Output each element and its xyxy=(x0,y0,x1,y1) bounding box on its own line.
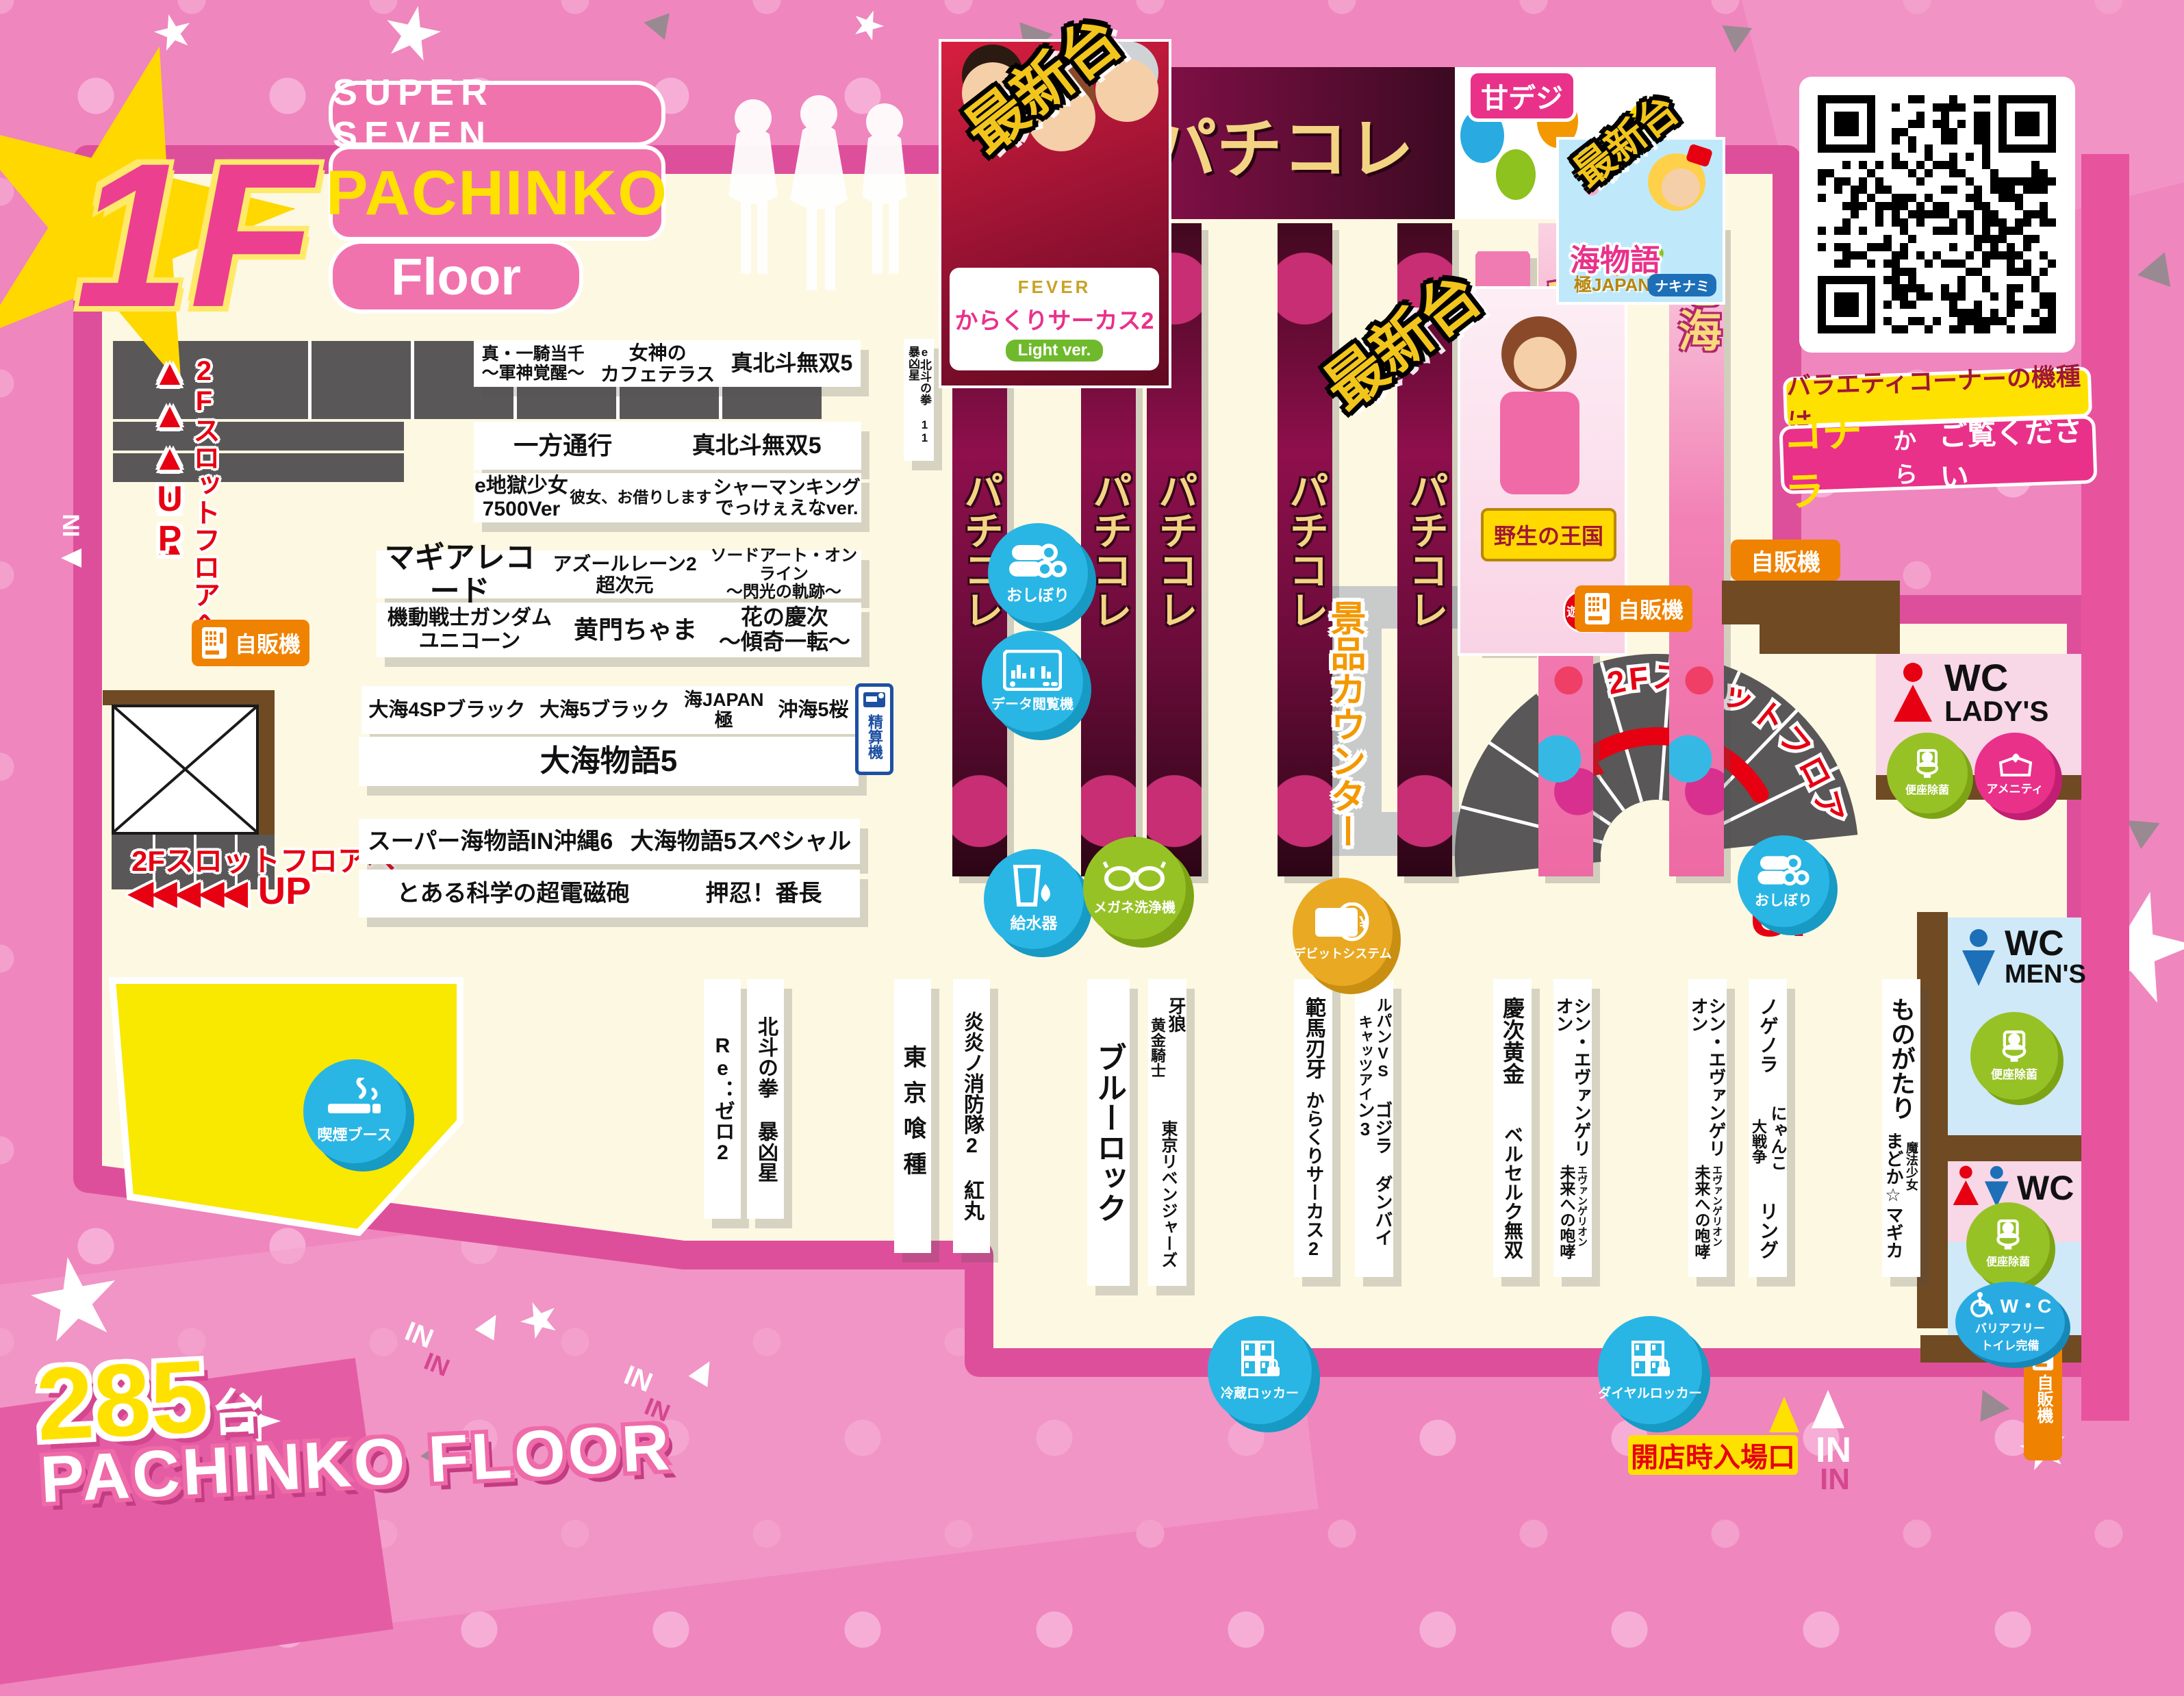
svg-text:¥: ¥ xyxy=(1359,912,1369,933)
machine-island-row: 一方通行 真北斗無双5 xyxy=(474,422,861,470)
machine-label: シン・エヴァンゲリオン xyxy=(1555,997,1590,1165)
vending-icon xyxy=(1584,592,1611,626)
machine-label: まどか☆マギカ xyxy=(1885,1132,1903,1259)
machine-label: 女神の カフェテラス xyxy=(600,342,715,385)
seat-clean-badge: 便座除菌 xyxy=(1966,1202,2050,1286)
amenity-label: アメニティ xyxy=(1986,779,2043,796)
pachinko-floor-map: { "header": { "floor_badge": "1F", "bran… xyxy=(0,0,2184,1489)
in-marker: IN xyxy=(59,514,86,537)
card-icon: ¥ xyxy=(1314,902,1371,942)
machine-label: ものがたり xyxy=(1889,997,1914,1120)
debit-label: デビットシステム xyxy=(1293,944,1391,962)
yasei-logo: 野生の王国 xyxy=(1481,508,1616,561)
machine-label: 真北斗無双5 xyxy=(692,433,822,459)
machine-label: 花の慶次 〜傾奇一転〜 xyxy=(719,605,850,655)
glasses-washer-station: メガネ洗浄機 xyxy=(1083,837,1186,939)
entrance-label: 開店時入場口 xyxy=(1631,1435,1795,1475)
machine-label: 魔法少女 xyxy=(1905,1141,1918,1191)
brand-pachinko: PACHINKO xyxy=(329,145,665,241)
machine-label: ブルーロック xyxy=(1093,1042,1123,1223)
wc-label: WC xyxy=(2005,926,2086,961)
machine-island-column: Re：ゼロ2 xyxy=(704,979,741,1219)
machine-label: 真北斗無双5 xyxy=(731,351,853,376)
to-2f-label: 2Fスロットフロアへ xyxy=(190,356,218,635)
kiosk-box: 精算機 xyxy=(855,683,893,775)
machine-label: Re：ゼロ2 xyxy=(712,1035,733,1164)
machine-island-column: 東京喰種 xyxy=(894,979,931,1253)
vending-label: 自販機 xyxy=(2035,1374,2051,1423)
vending-machine: 自販機 xyxy=(1731,540,1840,581)
machine-label: 大海4SPブラック xyxy=(368,699,525,721)
machine-label: 大海物語5 xyxy=(540,744,677,778)
machine-label: スーパー海物語IN沖縄6 xyxy=(368,828,613,855)
left-up-row: ◀◀◀◀◀ UP xyxy=(127,868,312,913)
vending-label: 自販機 xyxy=(1751,544,1820,577)
wall xyxy=(1760,624,1900,654)
machine-island-column: ものがたり まどか☆マギカ魔法少女 xyxy=(1882,979,1920,1277)
yasei-title: 野生の王国 xyxy=(1494,519,1603,550)
machine-island-column: e北斗の拳 11 暴凶星 xyxy=(904,339,934,461)
machine-label: 未来への咆哮 xyxy=(1558,1165,1574,1259)
pachikore-label: パチコレ xyxy=(1154,470,1194,629)
entrance-box: 開店時入場口 xyxy=(1628,1435,1798,1475)
machine-island-column: ノゲノラ 大戦争にゃんこ リング xyxy=(1749,979,1787,1277)
cigarette-icon xyxy=(325,1078,384,1120)
machine-label: からくりサーカス2 xyxy=(1304,1091,1323,1259)
towel-icon xyxy=(1757,852,1810,888)
machine-label: エヴァンゲリオン xyxy=(1577,1165,1587,1247)
girl-silhouettes xyxy=(712,89,917,336)
oshibori-station: おしぼり xyxy=(988,523,1088,623)
smoking-area xyxy=(103,974,472,1241)
amadeji-label: 甘デジ xyxy=(1481,76,1563,116)
machine-island-column: 黄金騎士牙狼 東京リベンジャーズ xyxy=(1148,979,1186,1286)
kiosk-icon xyxy=(862,691,887,711)
male-icon xyxy=(1959,928,1999,994)
smoking-booth: 喫煙ブース xyxy=(303,1059,406,1163)
machine-island-column: キャッツアイルパンVS ゴジラ ダンバイン3 xyxy=(1355,979,1393,1277)
data-screen-icon xyxy=(1003,650,1062,691)
vending-machine: 自販機 xyxy=(192,620,309,666)
towel-icon xyxy=(1009,541,1067,581)
machine-label: マギアレコード xyxy=(377,541,543,609)
machine-label: 炎炎ノ消防隊2 紅丸 xyxy=(961,1011,982,1221)
machine-label: 押忍！番長 xyxy=(706,881,822,907)
machine-label: シャーマンキング でっけぇえなver. xyxy=(713,477,861,518)
glasses-washer-label: メガネ洗浄機 xyxy=(1093,896,1176,916)
machine-island-row: とある科学の超電磁砲 押忍！番長 xyxy=(359,870,860,917)
qr-code xyxy=(1818,95,2057,334)
seat-clean-badge: 便座除菌 xyxy=(1887,733,1968,813)
umi-sub2: ナキナミ xyxy=(1648,274,1716,296)
toilet-icon xyxy=(1997,1030,2031,1065)
data-viewer-station: データ閲覧機 xyxy=(982,631,1083,732)
machine-label: エヴァンゲリオン xyxy=(1712,1165,1722,1247)
female-icon xyxy=(1951,1164,1981,1213)
barrier-free-line2: トイレ完備 xyxy=(1981,1336,2040,1353)
seat-clean-badge: 便座除菌 xyxy=(1970,1012,2058,1100)
oshibori-label: おしぼり xyxy=(1755,889,1812,910)
ladys-label: LADY'S xyxy=(1944,697,2048,726)
smoking-label: 喫煙ブース xyxy=(318,1123,392,1145)
brand-floor: Floor xyxy=(329,240,583,314)
water-icon xyxy=(1010,865,1058,909)
mens-label: MEN'S xyxy=(2005,961,2086,987)
vending-label: 自販機 xyxy=(235,627,301,659)
wall xyxy=(1948,1135,2081,1161)
wc-label: WC xyxy=(2017,1168,2074,1208)
machine-island-row: マギアレコード アズールレーン2 超次元 ソードアート・オンライン 〜閃光の軌跡… xyxy=(377,550,861,598)
machine-island-row: 真・一騎当千 〜軍神覚醒〜 女神の カフェテラス 真北斗無双5 xyxy=(474,340,861,387)
machine-label: 海JAPAN 極 xyxy=(684,689,764,731)
toilet-icon xyxy=(1992,1219,2024,1252)
footer-logo: 285 台 PACHINKO FLOOR xyxy=(34,1326,674,1510)
up-arrow-icon: ▲ xyxy=(152,395,187,436)
machine-island-row: 機動戦士ガンダム ユニコーン 黄門ちゃま 花の慶次 〜傾奇一転〜 xyxy=(377,603,861,657)
machine-label: 沖海5桜 xyxy=(778,699,848,721)
tissue-icon xyxy=(1996,750,2033,779)
seat-clean-label: 便座除菌 xyxy=(1991,1065,2037,1082)
pachikore-label: パチコレ xyxy=(1285,470,1325,629)
wall xyxy=(1722,581,1900,624)
pachikore-label: パチコレ xyxy=(1151,96,1414,191)
water-station: 給水器 xyxy=(984,849,1084,949)
fridge-locker-label: 冷蔵ロッカー xyxy=(1221,1383,1299,1402)
machine-label: にゃんこ xyxy=(1768,1105,1785,1171)
wall xyxy=(1917,912,1948,1328)
machine-label: 黄門ちゃま xyxy=(574,616,697,644)
up-arrow-icon: ▲ xyxy=(152,353,187,394)
amenity-badge: アメニティ xyxy=(1975,733,2055,813)
seat-clean-label: 便座除菌 xyxy=(1905,781,1949,797)
water-label: 給水器 xyxy=(1011,910,1058,933)
locker-icon xyxy=(1629,1339,1671,1382)
prize-counter-label: 景品カウンター xyxy=(1327,600,1362,849)
up-label: UP xyxy=(152,479,188,559)
machine-label: とある科学の超電磁砲 xyxy=(397,881,630,907)
machine-island-row: スーパー海物語IN沖縄6 大海物語5スペシャル xyxy=(359,819,860,864)
machine-label: シン・エヴァンゲリオン xyxy=(1690,997,1725,1165)
machine-label: 真・一騎当千 〜軍神覚醒〜 xyxy=(482,344,585,383)
qr-cta-rest: ご覧ください xyxy=(1938,407,2094,496)
oshibori-label: おしぼり xyxy=(1006,582,1069,605)
amadeji-logo: 甘デジ xyxy=(1467,70,1577,122)
machine-label: 大戦争 xyxy=(1751,1119,1766,1164)
balloon-icon xyxy=(1496,149,1536,200)
debit-station: ¥ デビットシステム xyxy=(1293,878,1393,986)
up-arrow-icon: ▲ xyxy=(152,438,187,479)
oshibori-station: おしぼり xyxy=(1738,835,1829,927)
machine-island-column: 範馬刃牙 からくりサーカス2 xyxy=(1294,979,1332,1277)
wheelchair-icon xyxy=(1969,1291,1996,1319)
machine-label: 大海5ブラック xyxy=(539,699,670,721)
seat-clean-label: 便座除菌 xyxy=(1986,1252,2030,1269)
wc-label: WC xyxy=(1944,659,2048,697)
machine-label: 東京リベンジャーズ xyxy=(1159,1120,1176,1268)
wall xyxy=(103,690,274,705)
in-marker: IN xyxy=(1820,1463,1850,1497)
brand-super-seven: SUPER SEVEN xyxy=(329,81,665,147)
poster-art xyxy=(1662,168,1700,207)
machine-island-row: 大海物語5 xyxy=(359,737,859,786)
qr-cta-mid: から xyxy=(1892,421,1936,490)
machine-island-column: 炎炎ノ消防隊2 紅丸 xyxy=(953,979,990,1253)
stair-separator xyxy=(411,341,414,419)
vending-icon xyxy=(201,626,228,660)
glasses-icon xyxy=(1103,861,1166,894)
machine-label: ベルセルク無双 xyxy=(1503,1125,1522,1259)
machine-label: 機動戦士ガンダム ユニコーン xyxy=(388,607,552,653)
pachikore-banner-vertical: パチコレ xyxy=(1278,223,1332,876)
poster-art xyxy=(1514,337,1566,389)
fever-label: FEVER xyxy=(1018,277,1091,298)
brand-line3: Floor xyxy=(391,247,521,307)
nanami-banner-vertical: 七海 xyxy=(1669,223,1724,876)
wc-mens-label: WC MEN'S xyxy=(2005,926,2086,987)
poster-art xyxy=(1500,392,1579,494)
brand-line1: SUPER SEVEN xyxy=(333,71,661,156)
machine-label: 東京喰種 xyxy=(901,1045,924,1187)
karakuri-title: からくりサーカス2 xyxy=(955,302,1154,336)
data-viewer-label: データ閲覧機 xyxy=(991,693,1074,713)
qr-cta-box: コチラ から ご覧ください xyxy=(1779,415,2097,494)
karakuri-sub: Light ver. xyxy=(1006,340,1104,362)
machine-label: e地獄少女 7500Ver xyxy=(474,474,568,520)
barrier-free-badge: W・C バリアフリー トイレ完備 xyxy=(1955,1282,2065,1363)
pachikore-label: パチコレ xyxy=(1089,470,1128,629)
machine-island-column: シン・エヴァンゲリオン 未来への咆哮エヴァンゲリオン xyxy=(1688,979,1727,1277)
machine-island-row: e地獄少女 7500Ver 彼女、お借りします シャーマンキング でっけぇえなv… xyxy=(474,473,861,522)
toilet-icon xyxy=(1912,749,1943,781)
pachikore-label: パチコレ xyxy=(1405,470,1445,629)
machine-island-column: 北斗の拳 暴凶星 xyxy=(747,979,784,1219)
barrier-free-line1: バリアフリー xyxy=(1975,1319,2045,1336)
floor-badge: 1F xyxy=(75,116,315,353)
machine-island-row: 大海4SPブラック 大海5ブラック 海JAPAN 極 沖海5桜 xyxy=(361,686,856,734)
brand-line2: PACHINKO xyxy=(326,157,668,229)
dial-locker: ダイヤルロッカー xyxy=(1598,1316,1702,1424)
wc-ladys-label: WC LADY'S xyxy=(1944,659,2048,726)
machine-label: 一方通行 xyxy=(513,432,612,459)
wall xyxy=(258,690,275,837)
wc-dot-label: W・C xyxy=(2001,1291,2052,1319)
machine-label: 黄金騎士 xyxy=(1150,1017,1165,1078)
machine-label: ノゲノラ xyxy=(1758,997,1777,1074)
umi-sub1: 極JAPAN xyxy=(1574,271,1651,296)
fridge-locker: 冷蔵ロッカー xyxy=(1208,1316,1312,1424)
machine-label: 未来への咆哮 xyxy=(1693,1165,1709,1259)
machine-label: 大海物語5スペシャル xyxy=(631,828,852,855)
left-arrow-icon: ◀◀◀◀◀ xyxy=(127,873,245,911)
machine-label: ソードアート・オンライン 〜閃光の軌跡〜 xyxy=(707,547,861,603)
machine-label: キャッツアイ xyxy=(1358,1015,1372,1101)
machine-label: 牙狼 xyxy=(1167,997,1185,1033)
kiosk-label: 精算機 xyxy=(867,714,882,759)
machine-label: e北斗の拳 11 暴凶星 xyxy=(907,346,930,454)
arrow-up-icon xyxy=(1769,1397,1799,1432)
machine-label: リング xyxy=(1758,1202,1777,1259)
locker-icon xyxy=(1239,1339,1281,1382)
machine-label: 北斗の拳 暴凶星 xyxy=(755,1016,776,1182)
machine-label: 彼女、お借りします xyxy=(570,489,711,507)
qr-cta-highlight: コチラ xyxy=(1781,399,1892,518)
machine-island-column: シン・エヴァンゲリオン 未来への咆哮エヴァンゲリオン xyxy=(1553,979,1592,1277)
machine-label: 範馬刃牙 xyxy=(1303,997,1323,1079)
machine-label: アズールレーン2 超次元 xyxy=(543,553,706,596)
poster-title-band: FEVER からくりサーカス2 Light ver. xyxy=(950,268,1159,370)
escalator-void xyxy=(112,705,259,835)
vending-label: 自販機 xyxy=(1618,593,1684,624)
machine-label: ルパンVS xyxy=(1375,997,1391,1080)
female-icon xyxy=(1891,661,1936,733)
machine-label: 慶次黄金 xyxy=(1501,997,1523,1085)
vending-machine: 自販機 xyxy=(1575,585,1692,632)
up-label: UP xyxy=(258,869,312,912)
dial-locker-label: ダイヤルロッカー xyxy=(1598,1383,1701,1402)
arrow-up-icon xyxy=(61,548,81,568)
machine-label: ゴジラ ダンバイン3 xyxy=(1356,1101,1392,1259)
arrow-up-icon xyxy=(1812,1390,1844,1428)
machine-island-column: ブルーロック xyxy=(1087,979,1130,1286)
machine-island-column: 慶次黄金 ベルセルク無双 xyxy=(1493,979,1532,1277)
